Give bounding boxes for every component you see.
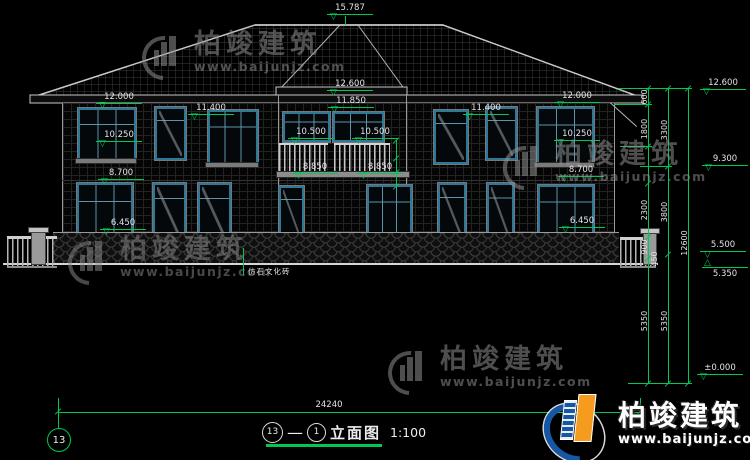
dim-label: 450 <box>649 244 659 274</box>
elevation-marker: ±0.000▽ <box>697 364 743 375</box>
elevation-triangle-icon: ▽ <box>331 106 338 115</box>
elevation-marker: 10.250▽ <box>96 131 142 142</box>
dim-label: 5350 <box>659 306 669 336</box>
left-fence-pillar-cap <box>28 227 49 233</box>
elevation-marker: 9.300▽ <box>702 155 748 166</box>
elevation-marker: 10.500▽ <box>288 128 334 139</box>
dim-label: 900 <box>639 232 649 262</box>
window-upper <box>208 110 258 166</box>
window-sill <box>205 162 259 168</box>
elevation-triangle-icon: ▽ <box>295 172 302 181</box>
elevation-marker: 11.850▽ <box>328 97 374 108</box>
elevation-triangle-icon: ▽ <box>360 172 367 181</box>
watermark: 柏竣建筑 www.baijunjz.com <box>503 138 707 186</box>
elevation-marker-ridge: 15.787 ▽ <box>327 4 373 15</box>
elevation-marker: 8.700▽ <box>98 169 144 180</box>
elevation-triangle-icon: ▽ <box>101 178 108 187</box>
watermark-url: www.baijunjz.com <box>120 265 272 279</box>
left-fence-pillar <box>31 230 46 265</box>
axis-circle-start: 13 <box>262 422 283 443</box>
watermark: 柏竣建筑 www.baijunjz.com <box>388 343 592 391</box>
dim-label: 5350 <box>639 306 649 336</box>
watermark-url: www.baijunjz.com <box>194 60 346 74</box>
elevation-marker: 10.500▽ <box>352 128 398 139</box>
dim-label: 3800 <box>659 197 669 227</box>
elevation-marker: 12.600▽ <box>700 79 746 90</box>
elevation-triangle-icon: ▽ <box>355 137 362 146</box>
watermark-brand: 柏竣建筑 <box>618 400 750 432</box>
watermark-color: 柏竣建筑 www.baijunjz.com <box>540 392 750 456</box>
watermark-brand: 柏竣建筑 <box>555 140 707 170</box>
elevation-triangle-icon: ▽ <box>330 13 337 22</box>
overall-width-label: 24240 <box>299 400 359 410</box>
elevation-marker: 5.350 <box>702 266 748 279</box>
elevation-marker: 11.400▽ <box>188 104 234 115</box>
elevation-marker: 12.000▽ <box>96 93 142 104</box>
elevation-triangle-icon: ▽ <box>466 113 473 122</box>
dim-label: 600 <box>639 82 649 112</box>
window-upper-narrow <box>434 110 468 164</box>
window-sill <box>75 158 137 164</box>
elevation-triangle-icon: ▽ <box>557 101 564 110</box>
baijun-logo-icon <box>388 343 432 391</box>
baijun-logo-icon <box>503 138 547 186</box>
elevation-marker: 6.450▽ <box>100 219 146 230</box>
mini-dim-line <box>396 140 397 186</box>
watermark-url: www.baijunjz.com <box>618 432 750 448</box>
elevation-triangle-icon: ▽ <box>291 137 298 146</box>
elevation-drawing-canvas: 15.787 ▽ 12.000▽ 11.400▽ 10.250▽ 8.700▽ … <box>0 0 750 460</box>
watermark-url: www.baijunjz.com <box>555 170 707 184</box>
watermark: 柏竣建筑 www.baijunjz.com <box>142 28 346 76</box>
drawing-scale: 1:100 <box>390 425 426 440</box>
elevation-marker: 8.850▽ <box>292 163 338 174</box>
elevation-marker: 6.450▽ <box>559 217 605 228</box>
window-upper-narrow <box>155 107 186 160</box>
marker-leader <box>345 16 346 25</box>
dim-label: 2300 <box>639 195 649 225</box>
dim-label: 12600 <box>679 228 689 258</box>
elevation-marker: 12.000▽ <box>554 92 600 103</box>
elevation-triangle-icon: ▽ <box>700 373 707 382</box>
dim-extension-line <box>628 383 692 384</box>
baijun-logo-icon <box>68 233 112 281</box>
baijun-color-logo-icon <box>540 392 612 456</box>
axis-circle-end: 1 <box>307 423 326 442</box>
watermark: 柏竣建筑 www.baijunjz.com <box>68 233 272 281</box>
drawing-title: 13 — 1 立面图 1:100 <box>262 420 426 444</box>
elevation-triangle-icon: ▽ <box>99 102 106 111</box>
watermark-url: www.baijunjz.com <box>440 375 592 389</box>
dim-extension-line <box>58 398 59 429</box>
dim-extension-line <box>618 88 692 89</box>
elevation-marker: 11.400▽ <box>463 104 509 115</box>
title-underline <box>266 444 382 447</box>
axis-dash: — <box>287 423 303 442</box>
watermark-brand: 柏竣建筑 <box>194 30 346 60</box>
watermark-brand: 柏竣建筑 <box>440 345 592 375</box>
axis-bubble-13: 13 <box>47 428 71 452</box>
elevation-triangle-icon: ▽ <box>191 113 198 122</box>
elevation-triangle-icon: ▽ <box>99 140 106 149</box>
drawing-title-text: 立面图 <box>330 422 381 443</box>
watermark-brand: 柏竣建筑 <box>120 235 272 265</box>
elevation-marker: 12.600▽ <box>327 80 373 91</box>
baijun-logo-icon <box>142 28 186 76</box>
elevation-triangle-icon: ▽ <box>703 88 710 97</box>
elevation-triangle-icon: ▽ <box>562 226 569 235</box>
